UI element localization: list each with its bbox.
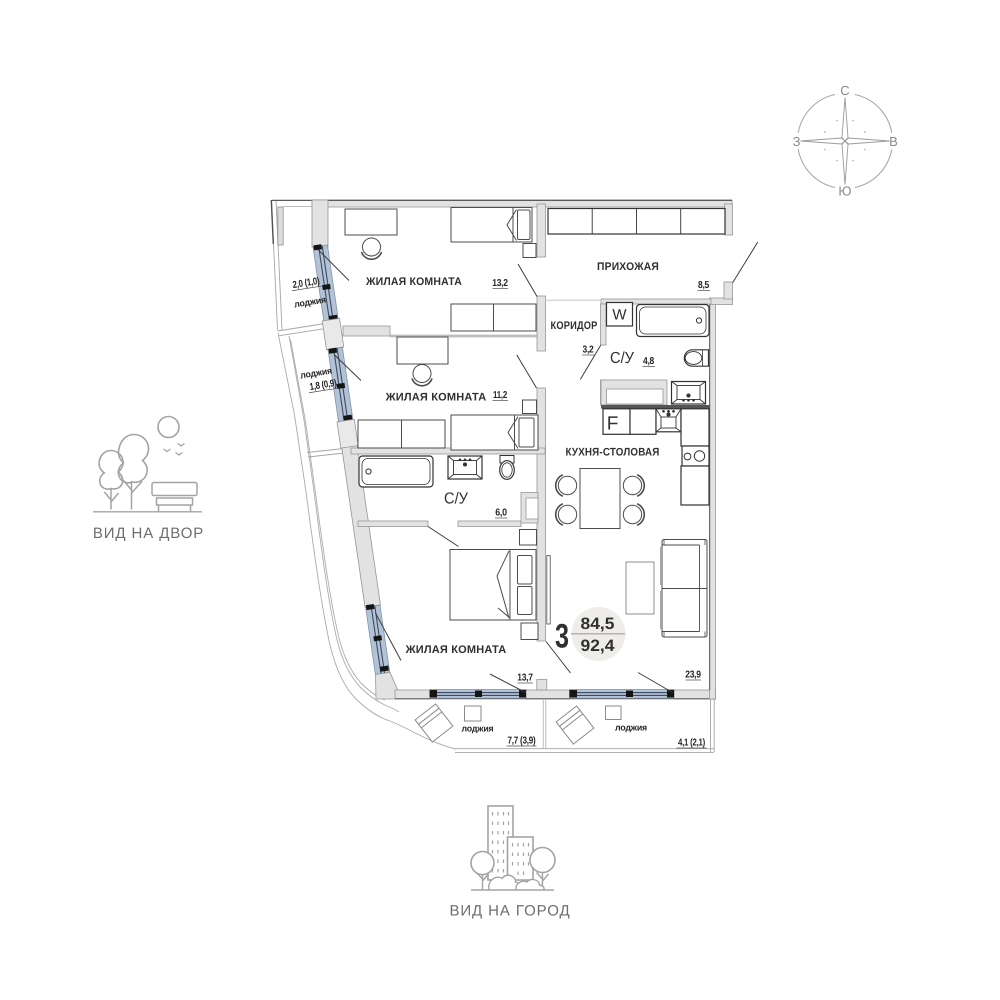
svg-text:3,2: 3,2 — [583, 345, 595, 356]
svg-text:С/У: С/У — [444, 491, 469, 508]
svg-text:4,1 (2,1): 4,1 (2,1) — [678, 738, 705, 749]
svg-text:7,7 (3,9): 7,7 (3,9) — [508, 736, 536, 747]
svg-text:В: В — [889, 134, 898, 149]
svg-text:8,5: 8,5 — [698, 280, 710, 291]
svg-text:Ю: Ю — [838, 184, 851, 199]
svg-text:ЖИЛАЯ КОМНАТА: ЖИЛАЯ КОМНАТА — [365, 276, 462, 288]
svg-text:КОРИДОР: КОРИДОР — [551, 320, 598, 332]
svg-text:лоджия: лоджия — [615, 723, 647, 733]
svg-text:ВИД НА ГОРОД: ВИД НА ГОРОД — [449, 903, 570, 920]
svg-text:84,5: 84,5 — [581, 615, 615, 633]
svg-text:13,2: 13,2 — [492, 278, 508, 289]
svg-text:КУХНЯ-СТОЛОВАЯ: КУХНЯ-СТОЛОВАЯ — [566, 447, 660, 459]
svg-text:11,2: 11,2 — [493, 390, 508, 401]
svg-text:F: F — [607, 414, 619, 435]
svg-text:С/У: С/У — [610, 350, 635, 367]
svg-text:W: W — [612, 307, 627, 324]
svg-text:ПРИХОЖАЯ: ПРИХОЖАЯ — [597, 261, 659, 273]
svg-text:ЖИЛАЯ КОМНАТА: ЖИЛАЯ КОМНАТА — [405, 644, 507, 656]
svg-text:6,0: 6,0 — [495, 508, 507, 519]
svg-text:92,4: 92,4 — [581, 637, 616, 655]
svg-text:З: З — [793, 134, 801, 149]
svg-text:лоджия: лоджия — [462, 724, 494, 734]
svg-text:ВИД НА ДВОР: ВИД НА ДВОР — [93, 525, 204, 542]
svg-text:ЖИЛАЯ КОМНАТА: ЖИЛАЯ КОМНАТА — [385, 392, 487, 404]
svg-text:С: С — [840, 83, 849, 98]
svg-text:13,7: 13,7 — [517, 673, 533, 684]
svg-text:4,8: 4,8 — [643, 356, 655, 367]
svg-text:23,9: 23,9 — [685, 670, 701, 681]
svg-text:3: 3 — [555, 618, 569, 656]
